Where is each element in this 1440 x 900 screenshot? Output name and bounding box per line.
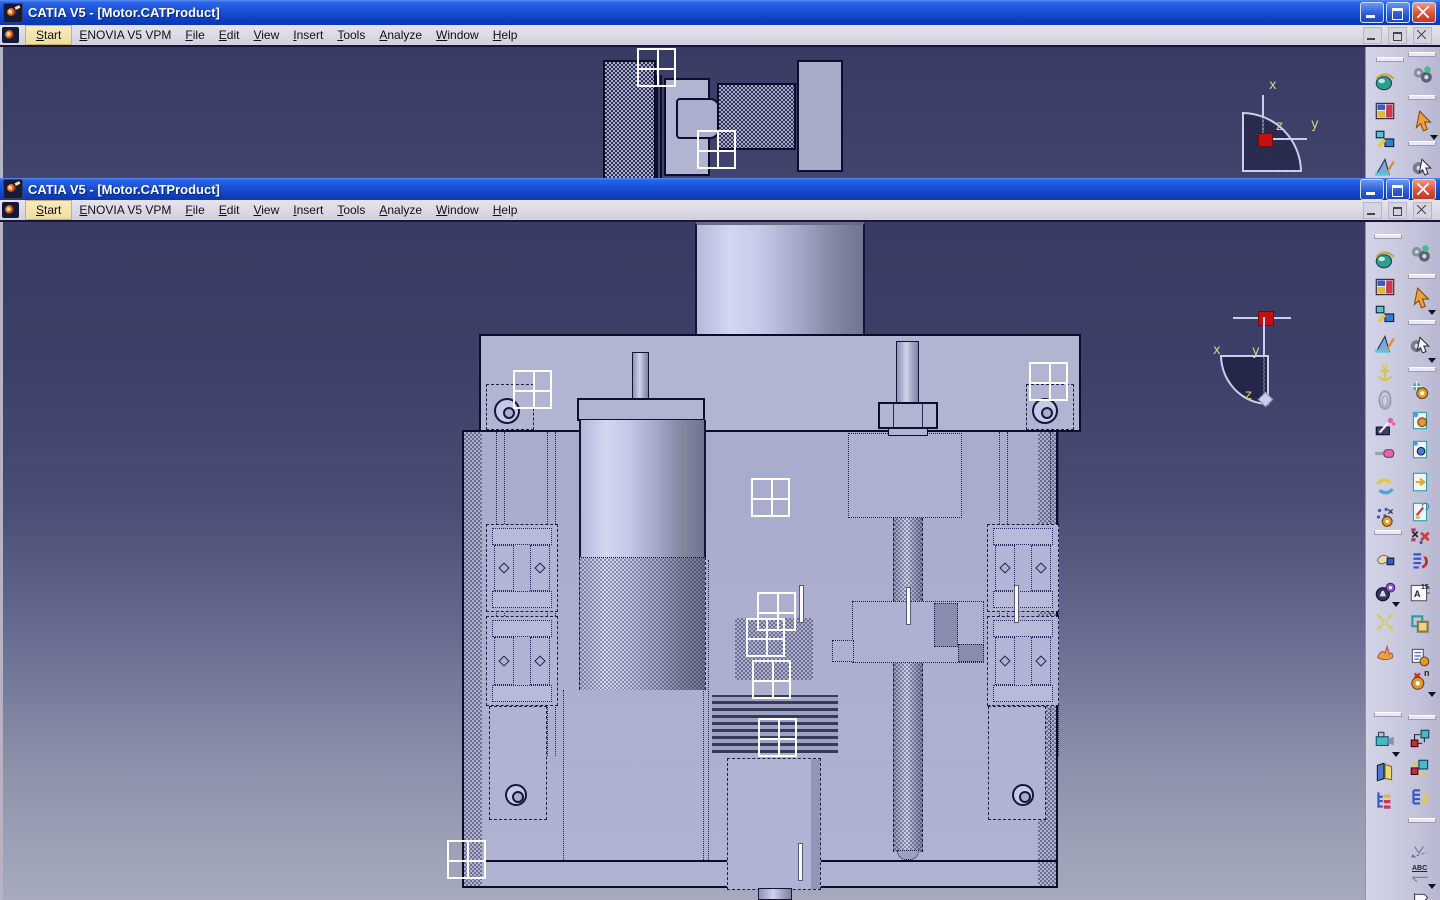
part-bracket-inset [958,644,984,662]
mdi-close-button[interactable] [1413,27,1432,44]
axis-x-label: x [1269,78,1277,93]
clash-flame-icon[interactable] [1373,640,1397,664]
title-bar: CATIA V5 - [Motor.CATProduct] [0,0,1440,25]
numbering-icon[interactable]: A 15 [1408,580,1432,604]
bolt-hole [505,784,527,806]
bolt-hole [1032,398,1058,424]
select-dropdown-arrow[interactable] [1428,310,1436,315]
manipulator-grid-marker[interactable] [513,370,552,409]
part-motor-body [579,420,706,558]
assembly-move-icon[interactable] [1373,128,1397,152]
part-guide-carriage [486,616,558,706]
smart-move-wand-icon[interactable] [1373,414,1397,438]
toolbar-handle[interactable] [1408,367,1436,372]
part-motor-flange [577,398,705,421]
open-book-icon[interactable] [1373,760,1397,784]
flask-dropdown-arrow[interactable] [1392,602,1400,607]
manipulator-grid-marker[interactable] [758,718,797,757]
viewport-3d[interactable]: x z y [0,47,1365,178]
part-bearing-block [848,433,962,518]
select-dropdown-arrow[interactable] [1430,135,1438,140]
menu-item-enovia[interactable]: ENOVIA V5 VPM [72,201,178,219]
window-title: CATIA V5 - [Motor.CATProduct] [28,182,220,197]
abc-label: ABC [1412,865,1427,872]
toolbar-handle[interactable] [1376,57,1404,62]
flask-gear-icon[interactable] [1373,580,1397,604]
menu-item-file[interactable]: File [178,26,211,44]
axis-line-marker[interactable] [906,587,911,625]
catia-window-2: CATIA V5 - [Motor.CATProduct] Start ENOV… [0,178,1440,900]
menu-item-tools[interactable]: Tools [330,26,372,44]
plate-seam [708,560,709,860]
toolbar-handle[interactable] [1408,320,1436,325]
axis-z-label: z [1276,119,1283,134]
axis-y-label: y [1311,117,1319,132]
mdi-restore-button[interactable] [1388,202,1407,219]
sketch-ruler-icon[interactable] [1373,332,1397,356]
document-icon[interactable] [2,202,19,218]
axis-line-marker[interactable] [1014,585,1019,623]
toolbar-handle[interactable] [1408,715,1436,720]
part-motor-shaft [632,352,649,400]
part-bracket-inset [934,603,958,647]
sparkle-gear-icon[interactable] [1408,379,1432,403]
window-border [0,222,3,900]
toolbar-handle[interactable] [1408,52,1436,57]
hand-box-icon[interactable] [1373,545,1397,569]
menu-bar: Start ENOVIA V5 VPM File Edit View Inser… [0,200,1440,220]
assembly-move-icon[interactable] [1373,303,1397,327]
flag-note-icon[interactable] [1408,890,1432,900]
axis-line-marker[interactable] [798,843,803,881]
part-bracket-arm [832,640,854,662]
frame-gear-icon[interactable] [1408,645,1432,669]
close-button[interactable] [1412,179,1436,200]
menu-item-start[interactable]: Start [25,200,72,220]
part-guide-carriage [987,524,1059,612]
manipulator-grid-marker[interactable] [752,660,791,699]
product-structure-icon[interactable] [1373,275,1397,299]
toolbar-handle[interactable] [1408,141,1436,146]
tools-gears-icon[interactable] [1410,63,1434,87]
minimize-button[interactable] [1360,2,1384,23]
part-plate-edge [656,75,662,178]
part-motor-body-hidden [579,557,706,690]
explode-arrows-icon[interactable] [1373,610,1397,634]
mdi-close-button[interactable] [1413,202,1432,219]
menu-item-analyze[interactable]: Analyze [372,201,429,219]
reorder-list-icon[interactable] [1408,550,1432,574]
menu-bar: Start ENOVIA V5 VPM File Edit View Inser… [0,25,1440,45]
catia-app-icon [3,179,23,199]
right-toolbar: A 15 n ABC [1365,222,1440,900]
part-guide-carriage [486,524,558,612]
window-title: CATIA V5 - [Motor.CATProduct] [28,5,220,20]
menu-item-edit[interactable]: Edit [212,201,247,219]
sketch-ruler-icon[interactable] [1373,155,1397,178]
points-gear-icon[interactable] [1373,505,1397,529]
document-icon[interactable] [2,27,19,43]
annotation-dropdown-arrow[interactable] [1428,884,1436,889]
axis-x-label: x [1213,343,1221,358]
part-hex-nut [878,402,938,429]
part-main-cylinder [695,222,865,335]
menu-item-start[interactable]: Start [25,25,72,45]
axis-y-label: y [1252,344,1260,359]
broken-link-icon[interactable] [1408,525,1432,549]
close-button[interactable] [1412,2,1436,23]
part-slider-block [727,758,821,890]
menu-item-tools[interactable]: Tools [330,201,372,219]
gear-cursor-icon[interactable] [1410,155,1434,178]
graph-tree-icon[interactable] [1408,727,1432,751]
menu-item-analyze[interactable]: Analyze [372,26,429,44]
product-structure-icon[interactable] [1373,99,1397,123]
menu-item-enovia[interactable]: ENOVIA V5 VPM [72,26,178,44]
render-style-icon[interactable] [1373,247,1397,271]
menu-item-help[interactable]: Help [486,201,525,219]
list-swoosh-icon[interactable] [1408,786,1432,810]
manipulator-grid-marker[interactable] [697,130,736,169]
mdi-minimize-button[interactable] [1363,27,1382,44]
gear-cursor-icon[interactable] [1408,333,1432,357]
multi-instantiation-dropdown-arrow[interactable] [1428,692,1436,697]
tools-gears-icon[interactable] [1408,242,1432,266]
fix-anchor-icon[interactable] [1373,362,1397,386]
window-border [0,47,3,178]
toolbar-handle[interactable] [1408,274,1436,279]
axis-z-label: z [1245,388,1252,403]
part-top-plate [479,334,1081,432]
menu-item-window[interactable]: Window [429,201,486,219]
menu-item-insert[interactable]: Insert [286,26,330,44]
compass-origin[interactable] [1258,311,1274,326]
part-nut-step [888,428,928,436]
menu-item-file[interactable]: File [178,201,211,219]
part-lower-stub [758,888,792,900]
restore-button[interactable] [1386,179,1410,200]
compass-y-axis [1271,138,1307,140]
menu-item-window[interactable]: Window [429,26,486,44]
import-doc-icon[interactable] [1408,470,1432,494]
new-component-icon[interactable] [1408,408,1432,432]
paperclip-icon[interactable] [1373,388,1397,412]
camera-icon[interactable] [1373,728,1397,752]
manipulator-grid-marker[interactable] [637,48,676,87]
screwdriver-icon[interactable] [1373,442,1397,466]
manipulator-grid-marker[interactable] [751,478,790,517]
part-ball-screw [893,518,923,852]
part-column-right [797,60,843,172]
restore-button[interactable] [1386,2,1410,23]
new-part-icon[interactable] [1408,437,1432,461]
mdi-restore-button[interactable] [1388,27,1407,44]
toolbar-handle[interactable] [1374,530,1402,535]
minimize-button[interactable] [1360,179,1384,200]
toolbar-handle[interactable] [1408,818,1436,823]
toolbar-handle[interactable] [1374,234,1402,239]
numbering-letter: A [1414,591,1421,598]
catia-app-icon [3,3,23,23]
menu-item-help[interactable]: Help [486,26,525,44]
menu-item-view[interactable]: View [246,201,286,219]
title-bar: CATIA V5 - [Motor.CATProduct] [0,178,1440,200]
viewport-3d[interactable]: x y z [0,222,1365,900]
axis-line-marker[interactable] [799,585,804,623]
numbering-number: 15 [1421,584,1429,591]
gear-n-label: n [1424,670,1430,677]
plate-seam [563,690,564,860]
toolbar-handle[interactable] [1374,712,1402,717]
part-threaded-rod [896,341,919,404]
select-cursor-icon[interactable] [1412,109,1436,133]
camera-dropdown-arrow[interactable] [1392,752,1400,757]
compass-origin[interactable] [1258,133,1273,147]
text-annotation-icon[interactable]: ABC [1408,862,1432,886]
snap-arrows-icon[interactable] [1373,475,1397,499]
manipulator-grid-marker[interactable] [447,840,486,879]
mdi-minimize-button[interactable] [1363,202,1382,219]
frames-icon[interactable] [1408,612,1432,636]
catia-screen: CATIA V5 - [Motor.CATProduct] Start ENOV… [0,0,1440,900]
gear-cursor-dropdown-arrow[interactable] [1428,358,1436,363]
catia-window-1: CATIA V5 - [Motor.CATProduct] Start ENOV… [0,0,1440,178]
select-cursor-icon[interactable] [1410,286,1434,310]
manipulator-grid-marker[interactable] [1029,362,1068,401]
menu-item-edit[interactable]: Edit [212,26,247,44]
measure-between-icon[interactable] [1408,840,1432,864]
tree-list-icon[interactable] [1373,788,1397,812]
toolbar-handle[interactable] [1408,95,1436,100]
bolt-hole [1012,784,1034,806]
right-toolbar [1365,47,1440,178]
render-style-icon[interactable] [1373,69,1397,93]
manipulator-grid-marker[interactable] [746,618,785,657]
selection-sets-icon[interactable] [1408,757,1432,781]
part-guide-carriage [987,616,1059,706]
menu-item-view[interactable]: View [246,26,286,44]
multi-instantiation-icon[interactable]: n [1408,668,1432,692]
doc-wrench-icon[interactable] [1408,500,1432,524]
menu-item-insert[interactable]: Insert [286,201,330,219]
block-shade [811,759,820,889]
plate-edge-hatch [464,432,482,886]
